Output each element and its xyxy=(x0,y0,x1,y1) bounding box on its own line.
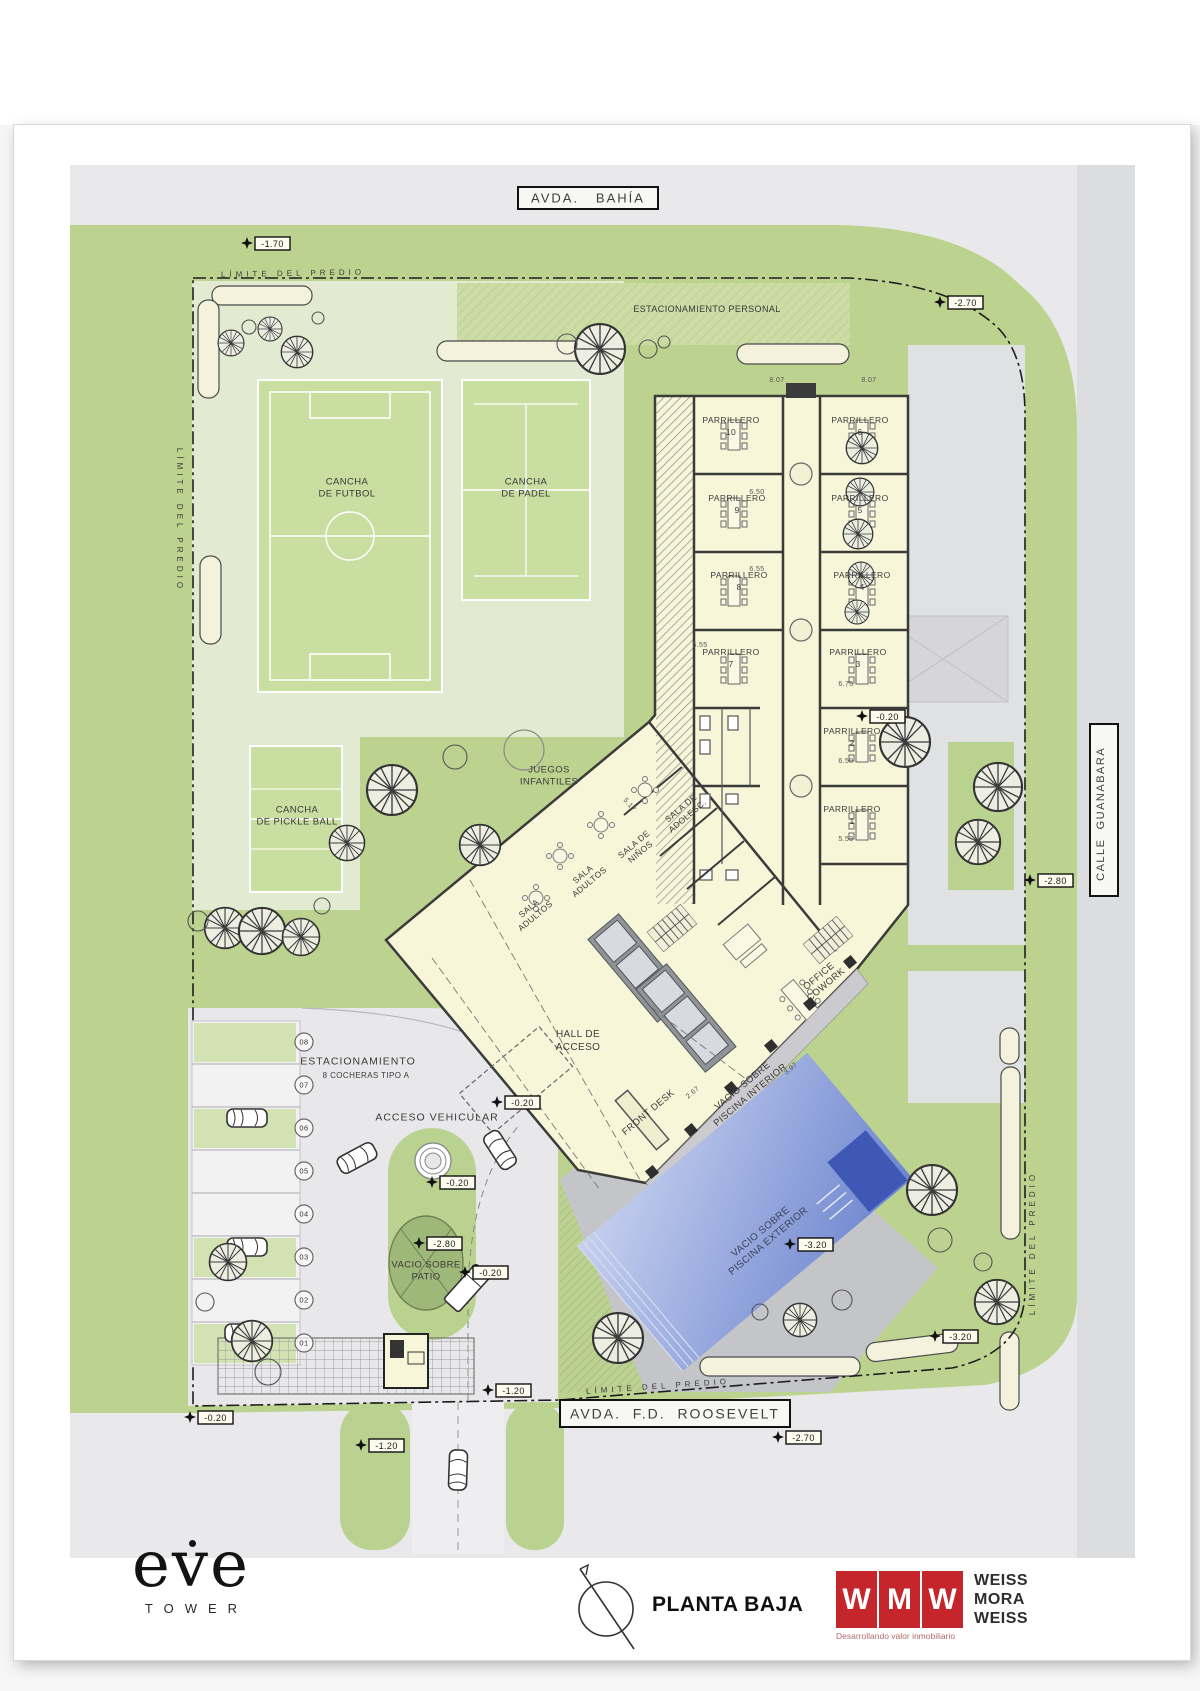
level-marker-value: -2.70 xyxy=(792,1433,815,1443)
area-label: ACCESO VEHICULAR xyxy=(375,1112,498,1124)
area-label-text: HALL DE xyxy=(556,1029,600,1040)
level-marker-value: -3.20 xyxy=(804,1240,827,1250)
area-label-text: INFANTILES xyxy=(520,776,578,787)
area-label: ESTACIONAMIENTO xyxy=(300,1056,416,1068)
level-marker-value: -2.80 xyxy=(1044,876,1067,886)
wmw-logo: W M W WEISS MORA WEISS Desarrollando val… xyxy=(836,1571,1028,1628)
level-marker-value: -3.20 xyxy=(949,1332,972,1342)
dimension-text: 8.07 xyxy=(861,377,876,384)
level-marker-value: -0.20 xyxy=(479,1268,502,1278)
street-label-text: CALLE GUANABARA xyxy=(1095,747,1107,881)
area-label-text: JUEGOS xyxy=(528,764,569,775)
parrillero-word: PARRILLERO xyxy=(823,804,880,814)
drawing-title: PLANTA BAJA xyxy=(652,1593,803,1617)
north-arrow-icon xyxy=(570,1563,642,1653)
stall-number-text: 07 xyxy=(299,1081,308,1090)
level-marker-value: -1.20 xyxy=(375,1441,398,1451)
parrillero-number: 10 xyxy=(726,427,736,437)
area-label-text: PATIO xyxy=(411,1271,440,1282)
page-margin-top xyxy=(0,0,1200,125)
area-label: ESTACIONAMIENTO PERSONAL xyxy=(633,304,780,314)
stall-number: 07 xyxy=(295,1076,313,1094)
parrillero-word: PARRILLERO xyxy=(823,726,880,736)
area-label-text: CANCHA xyxy=(276,804,319,815)
area-label: CANCHADE PADEL xyxy=(501,476,551,499)
area-label-text: DE PICKLE BALL xyxy=(256,816,337,827)
area-label-text: DE PADEL xyxy=(501,488,551,499)
stall-number-text: 06 xyxy=(299,1124,308,1133)
area-label-text: VACIO SOBRE xyxy=(391,1259,460,1270)
plan-sheet: AVDA. BAHÍACALLE GUANABARAAVDA. F.D. ROO… xyxy=(14,125,1190,1660)
parrillero-number: 9 xyxy=(734,505,739,515)
area-label-text: DE FUTBOL xyxy=(319,488,376,499)
wmw-letter: W xyxy=(922,1571,963,1628)
bbq-entry xyxy=(786,383,816,398)
parrillero-word: PARRILLERO xyxy=(831,415,888,425)
parrillero-number: 4 xyxy=(859,582,864,592)
wmw-tagline: Desarrollando valor inmobiliario xyxy=(836,1631,1006,1641)
wmw-names: WEISS MORA WEISS xyxy=(974,1571,1028,1628)
parrillero-word: PARRILLERO xyxy=(702,415,759,425)
parrillero-word: PARRILLERO xyxy=(702,647,759,657)
level-marker-value: -0.20 xyxy=(204,1413,227,1423)
stall-number: 08 xyxy=(295,1033,313,1051)
area-label: JUEGOSINFANTILES xyxy=(520,764,578,787)
stall-number: 01 xyxy=(295,1334,313,1352)
level-marker-value: -2.80 xyxy=(433,1239,456,1249)
dimension-text: 6.50 xyxy=(838,758,853,765)
dimension-text: 6.55 xyxy=(749,566,764,573)
wmw-letter: W xyxy=(836,1571,877,1628)
parrillero-word: PARRILLERO xyxy=(833,570,890,580)
eve-logo: eve TOWER xyxy=(106,1533,276,1616)
level-marker-value: -1.20 xyxy=(502,1386,525,1396)
stall-number-text: 08 xyxy=(299,1038,308,1047)
site-plan: AVDA. BAHÍACALLE GUANABARAAVDA. F.D. ROO… xyxy=(14,125,1190,1660)
stall-number: 02 xyxy=(295,1291,313,1309)
street-label-text: AVDA. F.D. ROOSEVELT xyxy=(570,1405,780,1421)
eve-logo-sub: TOWER xyxy=(106,1601,276,1616)
level-marker-value: -0.20 xyxy=(511,1098,534,1108)
cancha-futbol xyxy=(258,380,442,692)
parrillero-word: PARRILLERO xyxy=(831,493,888,503)
parrillero-number: 3 xyxy=(855,659,860,669)
level-marker-value: -0.20 xyxy=(446,1178,469,1188)
street-label-text: AVDA. BAHÍA xyxy=(531,191,645,206)
area-label-text: LÍMITE DEL PREDIO xyxy=(175,448,184,592)
eve-logo-dot xyxy=(189,1540,196,1547)
wmw-logo-blocks: W M W xyxy=(836,1571,965,1628)
area-label-text: LÍMITE DEL PREDIO xyxy=(1028,1171,1037,1315)
parrillero-number: 5 xyxy=(857,505,862,515)
level-marker-value: -1.70 xyxy=(261,239,284,249)
parrillero-number: 7 xyxy=(728,659,733,669)
stall-number-text: 05 xyxy=(299,1167,308,1176)
eve-logo-word: eve xyxy=(132,1533,250,1597)
stall-number: 04 xyxy=(295,1205,313,1223)
area-label-text: 8 COCHERAS TIPO A xyxy=(323,1071,410,1080)
area-label: CANCHADE FUTBOL xyxy=(319,476,376,499)
stall-number-text: 03 xyxy=(299,1253,308,1262)
parrillero-word: PARRILLERO xyxy=(829,647,886,657)
dimension-text: 5.53 xyxy=(838,836,853,843)
dimension-text: 6.55 xyxy=(692,642,707,649)
stall-number: 05 xyxy=(295,1162,313,1180)
stall-number-text: 02 xyxy=(299,1296,308,1305)
stall-number-text: 04 xyxy=(299,1210,308,1219)
level-marker-value: -0.20 xyxy=(876,712,899,722)
stall-number-text: 01 xyxy=(299,1339,308,1348)
parking-stalls xyxy=(192,1021,300,1365)
area-label: LÍMITE DEL PREDIO xyxy=(1028,1171,1037,1315)
stall-number: 03 xyxy=(295,1248,313,1266)
street-label: AVDA. BAHÍA xyxy=(518,187,658,209)
street-label: CALLE GUANABARA xyxy=(1090,724,1118,896)
area-label: 8 COCHERAS TIPO A xyxy=(323,1071,410,1080)
area-label: LÍMITE DEL PREDIO xyxy=(175,448,184,592)
wmw-letter: M xyxy=(879,1571,920,1628)
parrillero-number: 1 xyxy=(849,816,854,826)
area-label-text: CANCHA xyxy=(326,476,369,487)
dimension-text: 6.50 xyxy=(749,489,764,496)
dimension-text: 8.07 xyxy=(769,377,784,384)
street-label: AVDA. F.D. ROOSEVELT xyxy=(560,1400,790,1427)
level-marker-value: -2.70 xyxy=(954,298,977,308)
stall-number: 06 xyxy=(295,1119,313,1137)
parrillero-number: 2 xyxy=(849,738,854,748)
area-label-text: ESTACIONAMIENTO PERSONAL xyxy=(633,304,780,314)
parrillero-number: 8 xyxy=(736,582,741,592)
parrillero-number: 6 xyxy=(857,427,862,437)
area-label-text: ACCESO xyxy=(556,1042,601,1053)
dimension-text: 6.75 xyxy=(838,681,853,688)
area-label-text: ACCESO VEHICULAR xyxy=(375,1112,498,1124)
area-label-text: CANCHA xyxy=(505,476,548,487)
screenshot-root: { "sheet": { "type": "architectural site… xyxy=(0,0,1200,1691)
area-label-text: ESTACIONAMIENTO xyxy=(300,1056,416,1068)
